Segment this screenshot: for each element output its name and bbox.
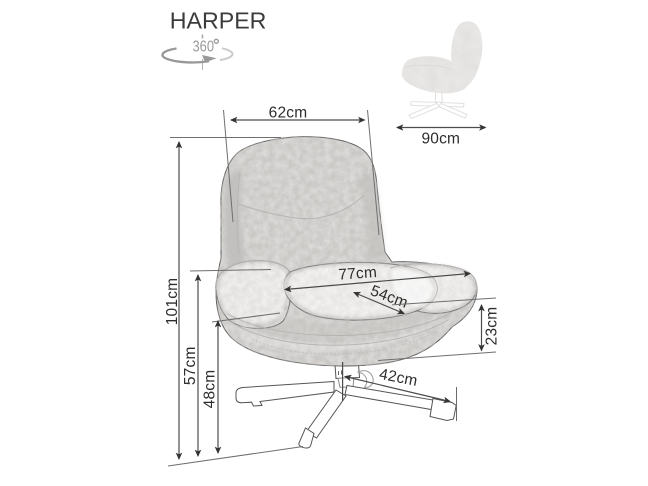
svg-text:23cm: 23cm — [483, 307, 500, 346]
svg-text:48cm: 48cm — [201, 370, 218, 409]
svg-text:57cm: 57cm — [182, 346, 199, 385]
svg-text:90cm: 90cm — [421, 130, 460, 147]
svg-text:HARPER: HARPER — [170, 8, 267, 34]
svg-text:101cm: 101cm — [164, 278, 181, 326]
svg-text:360: 360 — [193, 39, 215, 56]
svg-text:62cm: 62cm — [269, 105, 308, 122]
svg-text:77cm: 77cm — [338, 264, 378, 284]
